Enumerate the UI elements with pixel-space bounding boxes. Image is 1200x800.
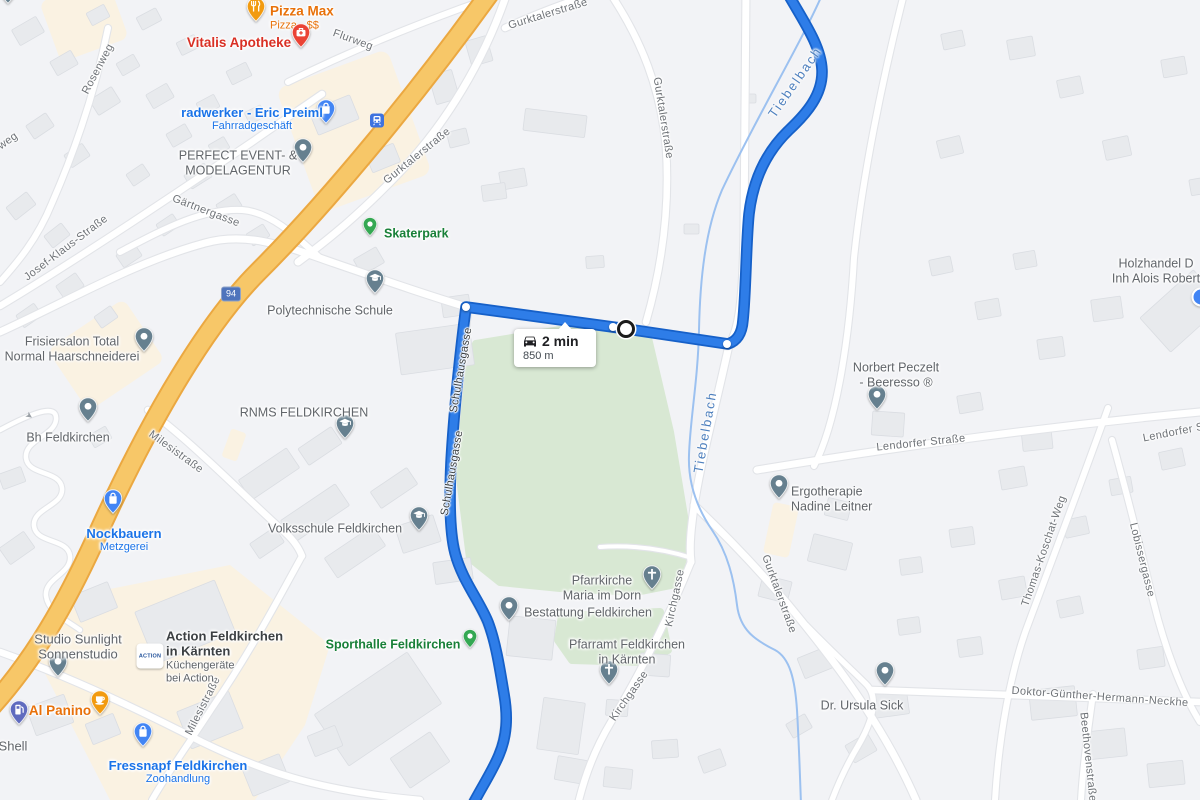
route-vertex-dot xyxy=(609,323,617,331)
action-feldkirchen-label[interactable]: Action Feldkirchenin KärntenKüchengeräte… xyxy=(166,629,283,686)
bestattung-label[interactable]: Bestattung Feldkirchen xyxy=(524,606,652,621)
bh-feldkirchen-label[interactable]: Bh Feldkirchen xyxy=(26,431,109,446)
rnms-feldkirchen-label[interactable]: RNMS FELDKIRCHEN xyxy=(240,406,369,421)
pfarrkirche-pin[interactable] xyxy=(642,565,662,596)
polytechnische-schule-label[interactable]: Polytechnische Schule xyxy=(267,304,393,319)
shell-label[interactable]: Shell xyxy=(0,738,27,753)
pfarrkirche-label[interactable]: PfarrkircheMaria im Dorn xyxy=(563,573,642,603)
route-vertex-dot xyxy=(723,340,731,348)
frisiersalon-label[interactable]: Frisiersalon TotalNormal Haarschneiderei xyxy=(5,334,140,364)
train-station-icon[interactable] xyxy=(370,114,384,133)
route-info-bubble[interactable]: 2 min 850 m xyxy=(514,329,596,367)
al-panino-pin[interactable] xyxy=(90,690,110,721)
volksschule-feldkirchen-label[interactable]: Volksschule Feldkirchen xyxy=(268,522,402,537)
bh-feldkirchen-pin[interactable] xyxy=(78,397,98,428)
vitalis-apotheke-label[interactable]: Vitalis Apotheke xyxy=(187,35,291,51)
pizza-max-pin[interactable] xyxy=(246,0,266,28)
ergotherapie-pin[interactable] xyxy=(769,474,789,505)
dr-ursula-sick-label[interactable]: Dr. Ursula Sick xyxy=(821,699,904,714)
studio-sunlight-label[interactable]: Studio SunlightSonnenstudio xyxy=(34,632,121,663)
skaterpark-pin[interactable] xyxy=(363,217,378,242)
al-panino-label[interactable]: Al Panino xyxy=(29,703,91,719)
pfarramt-label[interactable]: Pfarramt Feldkirchenin Kärnten xyxy=(569,637,685,667)
skaterpark-label[interactable]: Skaterpark xyxy=(384,227,449,242)
vitalis-apotheke-pin[interactable] xyxy=(291,23,311,54)
route-waypoint-marker[interactable] xyxy=(617,320,635,338)
sporthalle-feldkirchen-pin[interactable] xyxy=(463,629,478,654)
route-duration: 2 min xyxy=(542,333,579,349)
car-icon xyxy=(522,333,538,349)
dr-ursula-sick-pin[interactable] xyxy=(875,661,895,692)
radwerker-label[interactable]: radwerker - Eric PreimlFahrradgeschäft xyxy=(181,105,323,133)
fressnapf-label[interactable]: Fressnapf FeldkirchenZoohandlung xyxy=(109,758,248,786)
route-vertex-dot xyxy=(462,303,470,311)
ergotherapie-label[interactable]: ErgotherapieNadine Leitner xyxy=(791,484,872,514)
sporthalle-feldkirchen-label[interactable]: Sporthalle Feldkirchen xyxy=(326,638,461,653)
holzhandel-label[interactable]: Holzhandel DInh Alois Robert xyxy=(1112,256,1200,286)
action-feldkirchen-logo[interactable]: ACTION xyxy=(137,644,164,669)
clipped-pin-pin[interactable] xyxy=(0,0,18,10)
route-distance: 850 m xyxy=(523,350,588,362)
volksschule-feldkirchen-pin[interactable] xyxy=(409,506,429,537)
nockbauern-label[interactable]: NockbauernMetzgerei xyxy=(86,526,161,554)
route-shield-94: 94 xyxy=(221,287,241,302)
perfect-event-label[interactable]: PERFECT EVENT- &MODELAGENTUR xyxy=(179,148,298,178)
nockbauern-pin[interactable] xyxy=(103,489,123,520)
norbert-peczelt-label[interactable]: Norbert Peczelt- Beeresso ® xyxy=(853,360,939,390)
fressnapf-pin[interactable] xyxy=(133,722,153,753)
map-canvas[interactable]: wegRosenwegFlurwegGurktalerstraßeGurktal… xyxy=(0,0,1200,800)
shell-pin[interactable] xyxy=(9,700,29,731)
polytechnische-schule-pin[interactable] xyxy=(365,269,385,300)
bestattung-pin[interactable] xyxy=(499,596,519,627)
